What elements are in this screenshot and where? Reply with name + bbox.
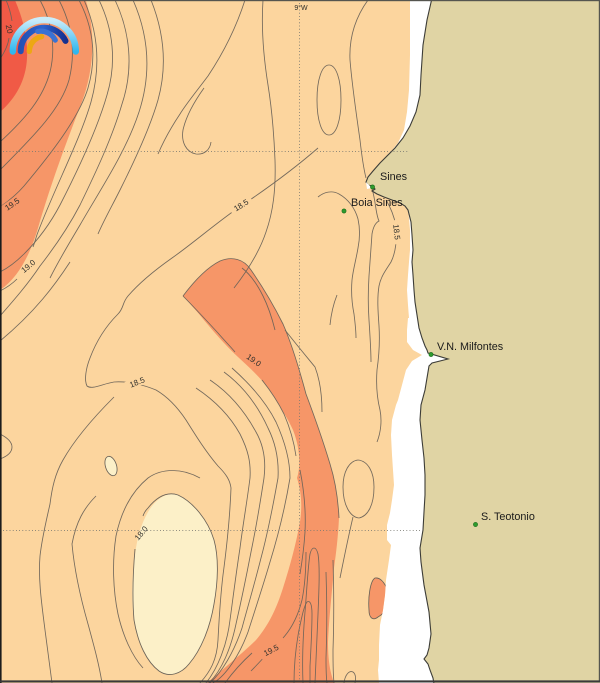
svg-text:Sines: Sines (380, 171, 408, 183)
svg-text:V.N. Milfontes: V.N. Milfontes (437, 341, 504, 353)
svg-text:9°W: 9°W (294, 4, 308, 12)
svg-text:S. Teotonio: S. Teotonio (481, 511, 535, 523)
svg-text:Boia Sines: Boia Sines (351, 197, 403, 209)
